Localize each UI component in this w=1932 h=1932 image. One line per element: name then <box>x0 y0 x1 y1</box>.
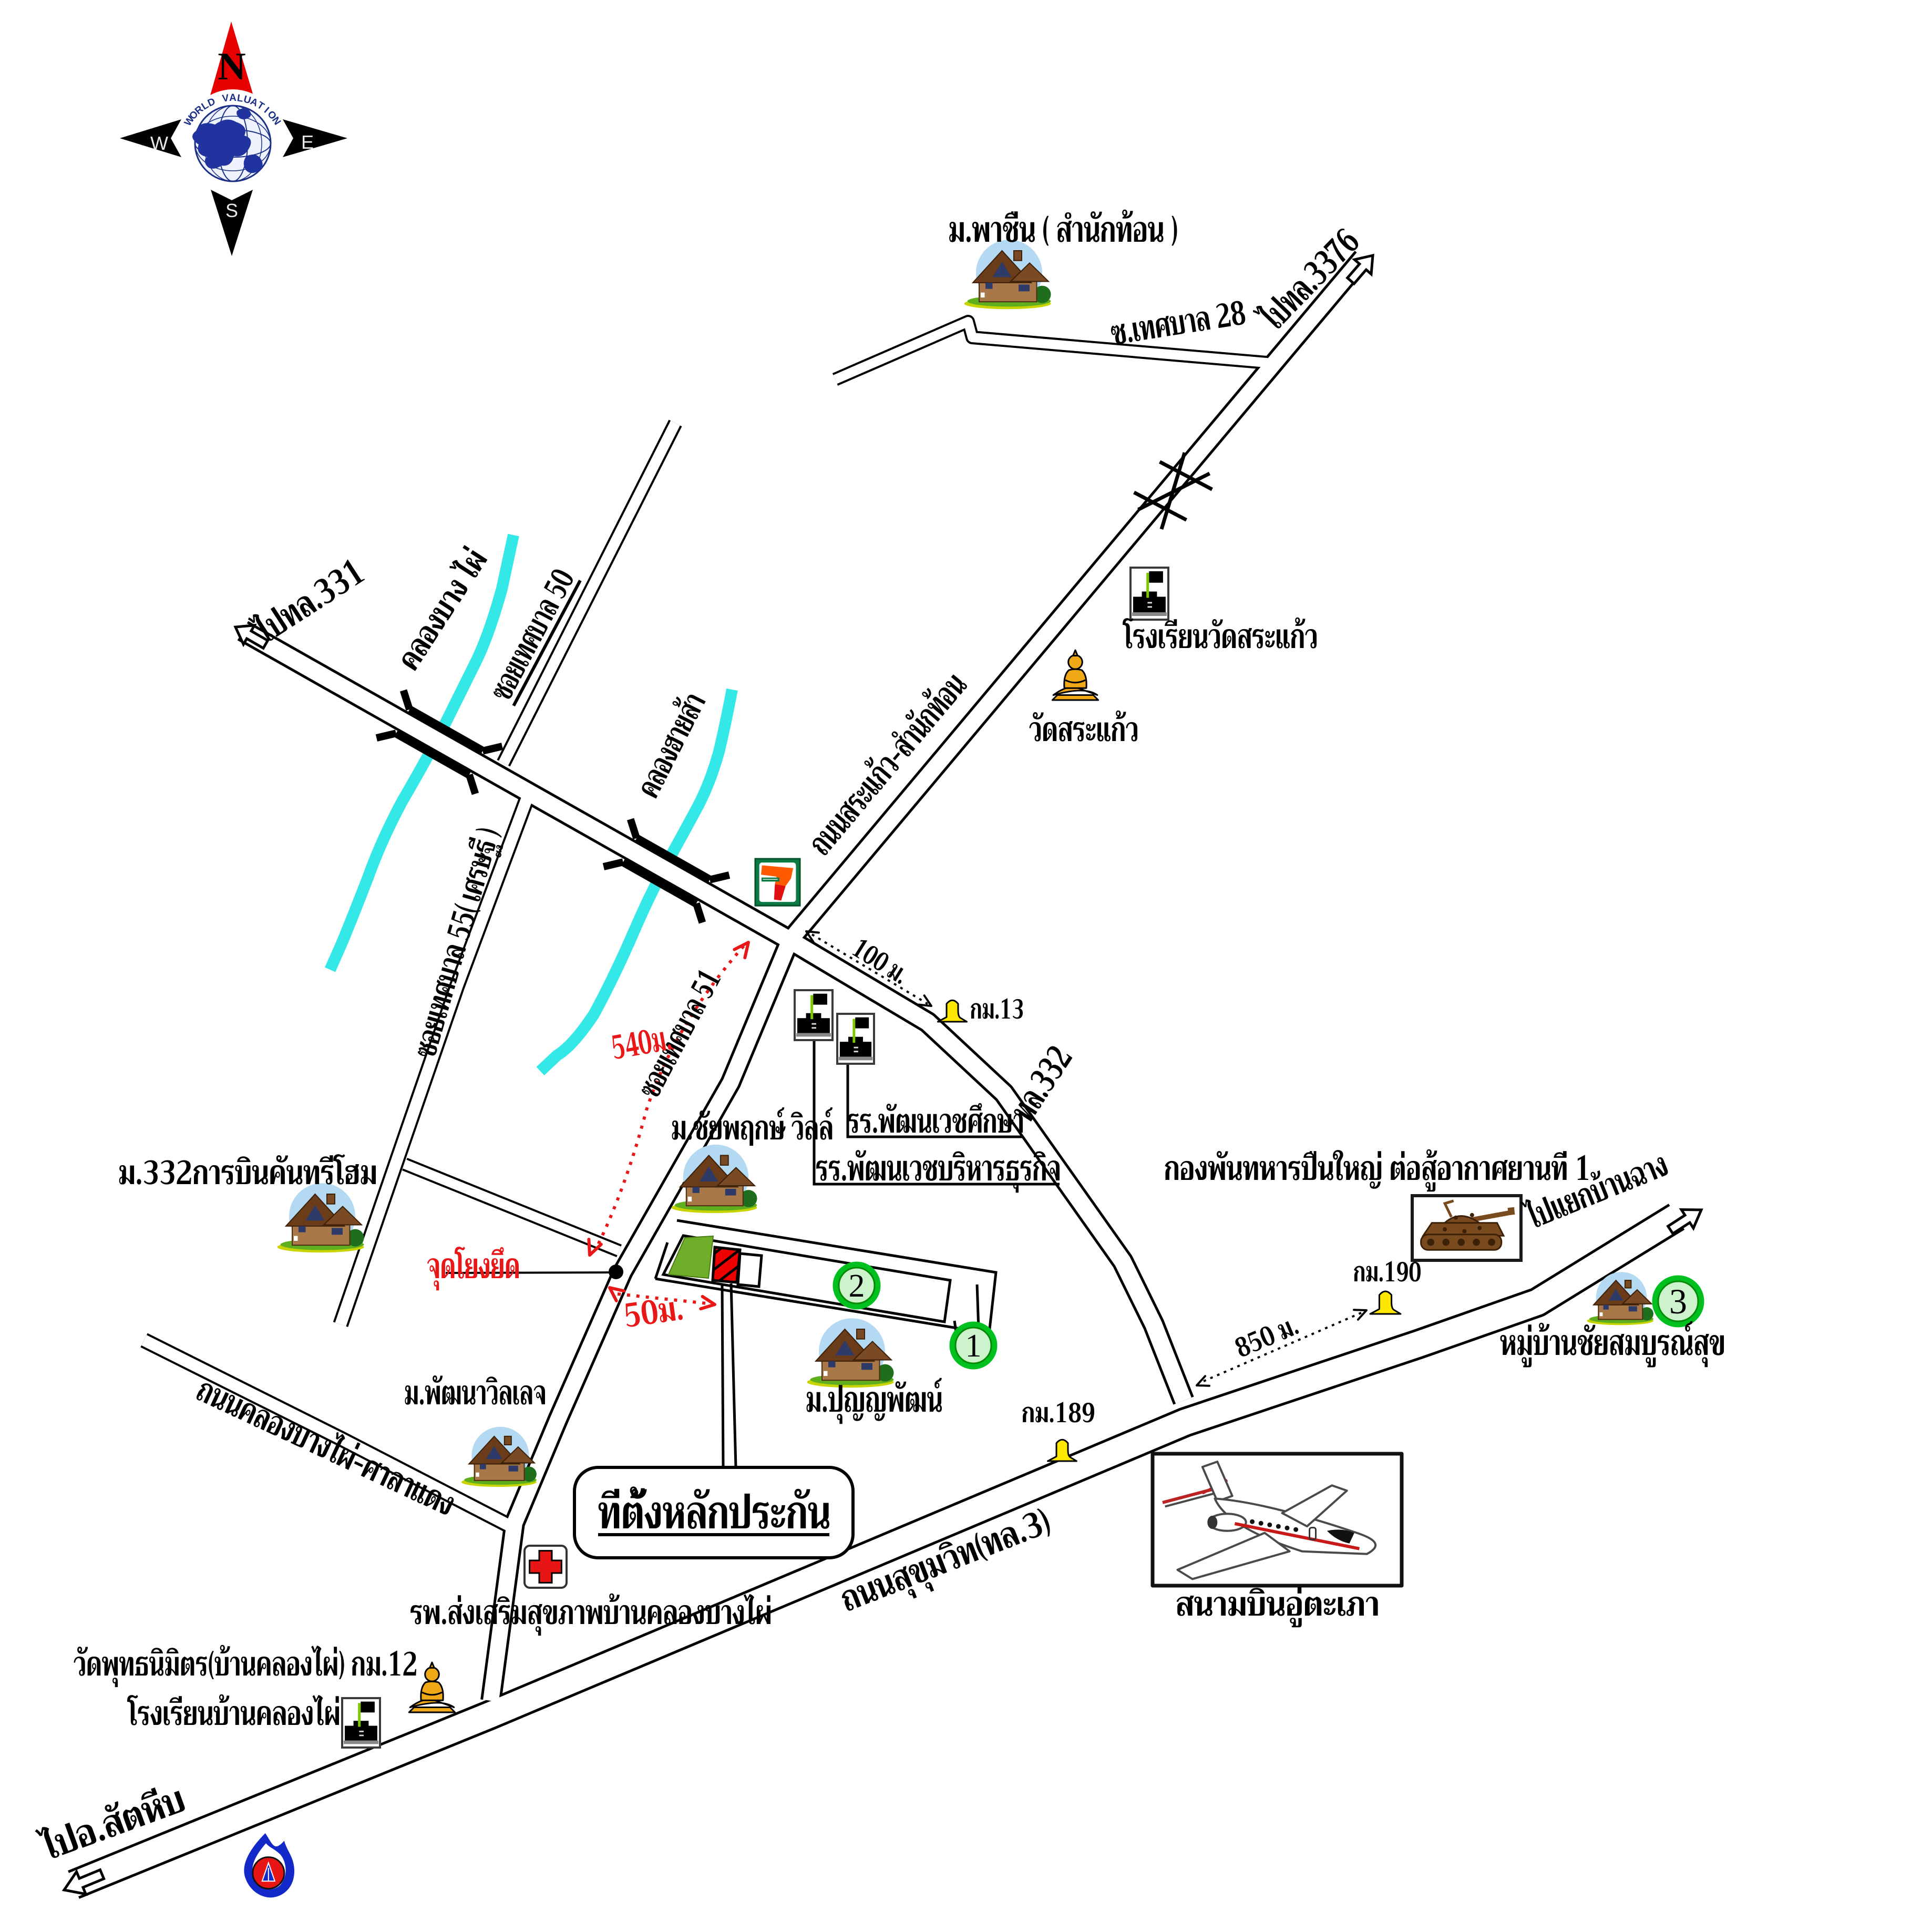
svg-text:3: 3 <box>1669 1281 1687 1321</box>
svg-text:S: S <box>225 200 238 221</box>
svg-text:2: 2 <box>849 1268 865 1304</box>
svg-text:N: N <box>218 45 245 88</box>
svg-text:E: E <box>301 131 314 153</box>
svg-text:A: A <box>229 93 237 104</box>
svg-text:1: 1 <box>965 1328 982 1364</box>
svg-text:W: W <box>150 132 168 154</box>
